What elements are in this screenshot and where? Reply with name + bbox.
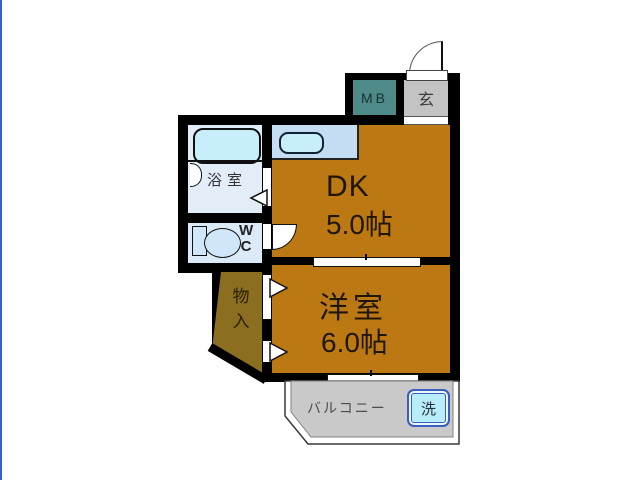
storage-door-arrow-icon-1 xyxy=(270,279,287,297)
western-window-tick xyxy=(370,370,372,376)
bathtub-icon xyxy=(193,128,261,164)
storage-door-tick xyxy=(262,319,272,321)
bathroom-divider-line xyxy=(188,160,262,162)
western-size-label: 6.0帖 xyxy=(321,321,388,361)
dk-size-label: 5.0帖 xyxy=(326,203,393,243)
storage-door-arrow-icon-2 xyxy=(270,343,287,361)
wc-label: W C xyxy=(239,223,253,255)
storage-label-char1: 物 xyxy=(230,284,252,309)
storage-label-char2: 入 xyxy=(230,309,252,334)
dk-label: DK xyxy=(326,170,370,204)
toilet-bowl-icon xyxy=(204,228,241,258)
washer-box: 洗 xyxy=(407,389,450,427)
balcony-label: バルコニー xyxy=(307,398,387,418)
bathroom-door-arrow-icon xyxy=(251,190,267,206)
wc-label-w: W xyxy=(239,223,253,239)
partition-door-tick xyxy=(365,254,367,260)
kitchen-sink-icon xyxy=(279,132,324,154)
storage-label: 物 入 xyxy=(230,284,252,334)
washer-label: 洗 xyxy=(421,398,436,419)
left-edge-line xyxy=(0,0,2,480)
bathroom-label: 浴室 xyxy=(207,169,247,190)
wc-label-c: C xyxy=(239,239,253,255)
floor-plan: MB 玄 浴室 W C xyxy=(0,0,640,480)
